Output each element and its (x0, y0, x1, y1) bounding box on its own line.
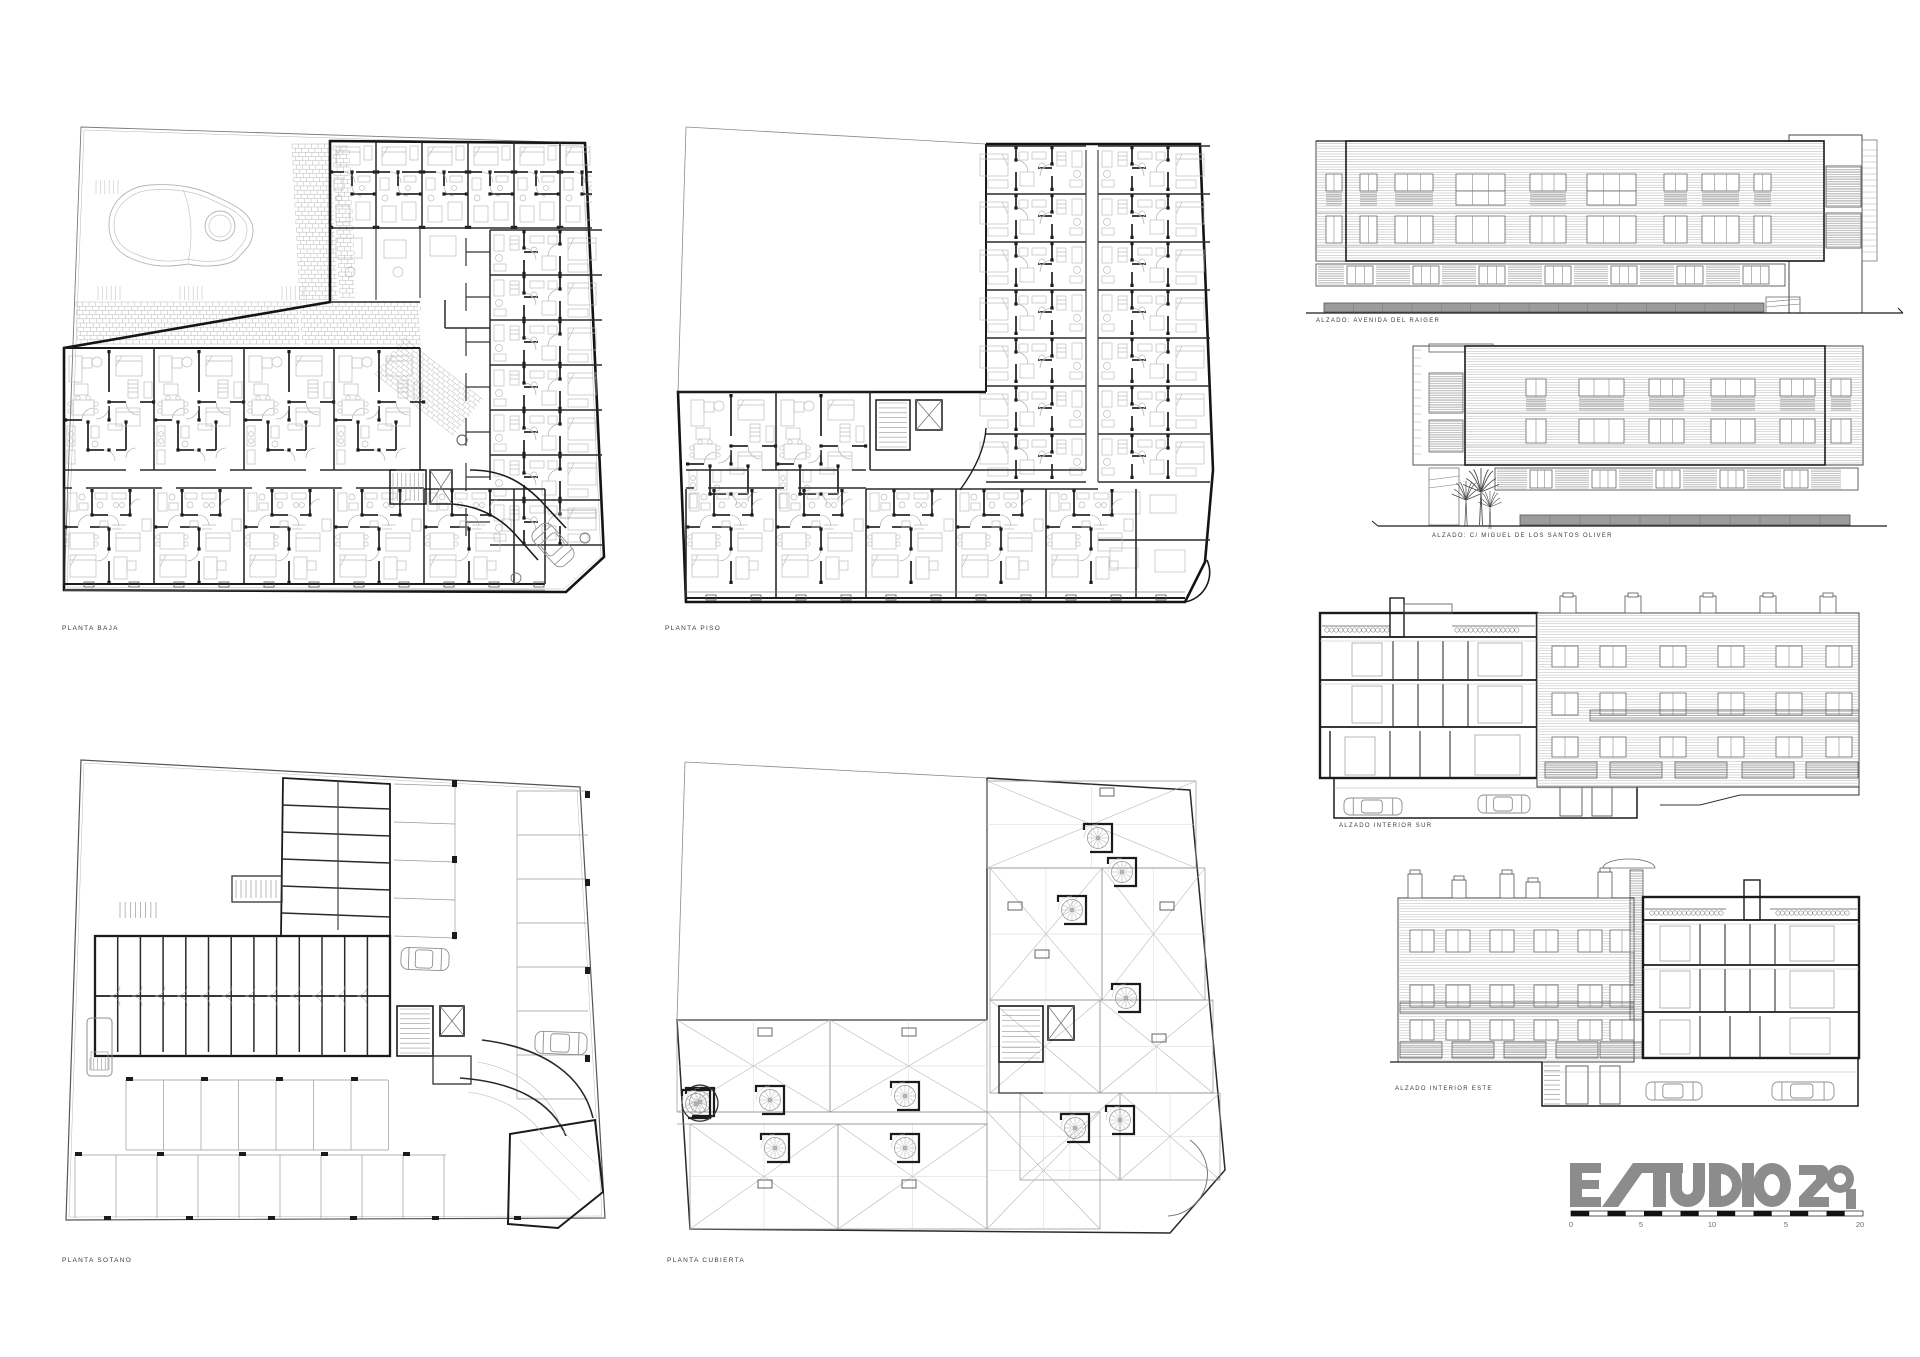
svg-text:ALZADO INTERIOR ESTE: ALZADO INTERIOR ESTE (1395, 1086, 1493, 1092)
svg-text:PLANTA SOTANO: PLANTA SOTANO (62, 1257, 132, 1264)
svg-text:0: 0 (1569, 1220, 1573, 1229)
svg-text:20: 20 (1856, 1220, 1864, 1229)
svg-text:ALZADO: C/ MIGUEL DE LOS: ALZADO: C/ MIGUEL DE LOS SANTOS OLIVER (1432, 533, 1613, 539)
svg-text:5: 5 (1784, 1220, 1788, 1229)
svg-text:PLANTA BAJA: PLANTA BAJA (62, 625, 119, 632)
svg-text:PLANTA PISO: PLANTA PISO (665, 625, 721, 632)
svg-text:ALZADO INTERIOR SUR: ALZADO INTERIOR SUR (1339, 823, 1432, 829)
svg-text:10: 10 (1708, 1220, 1716, 1229)
svg-text:ALZADO: AVENIDA DEL RAIGER: ALZADO: AVENIDA DEL RAIGER (1316, 318, 1440, 324)
svg-text:PLANTA CUBIERTA: PLANTA CUBIERTA (667, 1257, 745, 1264)
svg-text:5: 5 (1639, 1220, 1643, 1229)
